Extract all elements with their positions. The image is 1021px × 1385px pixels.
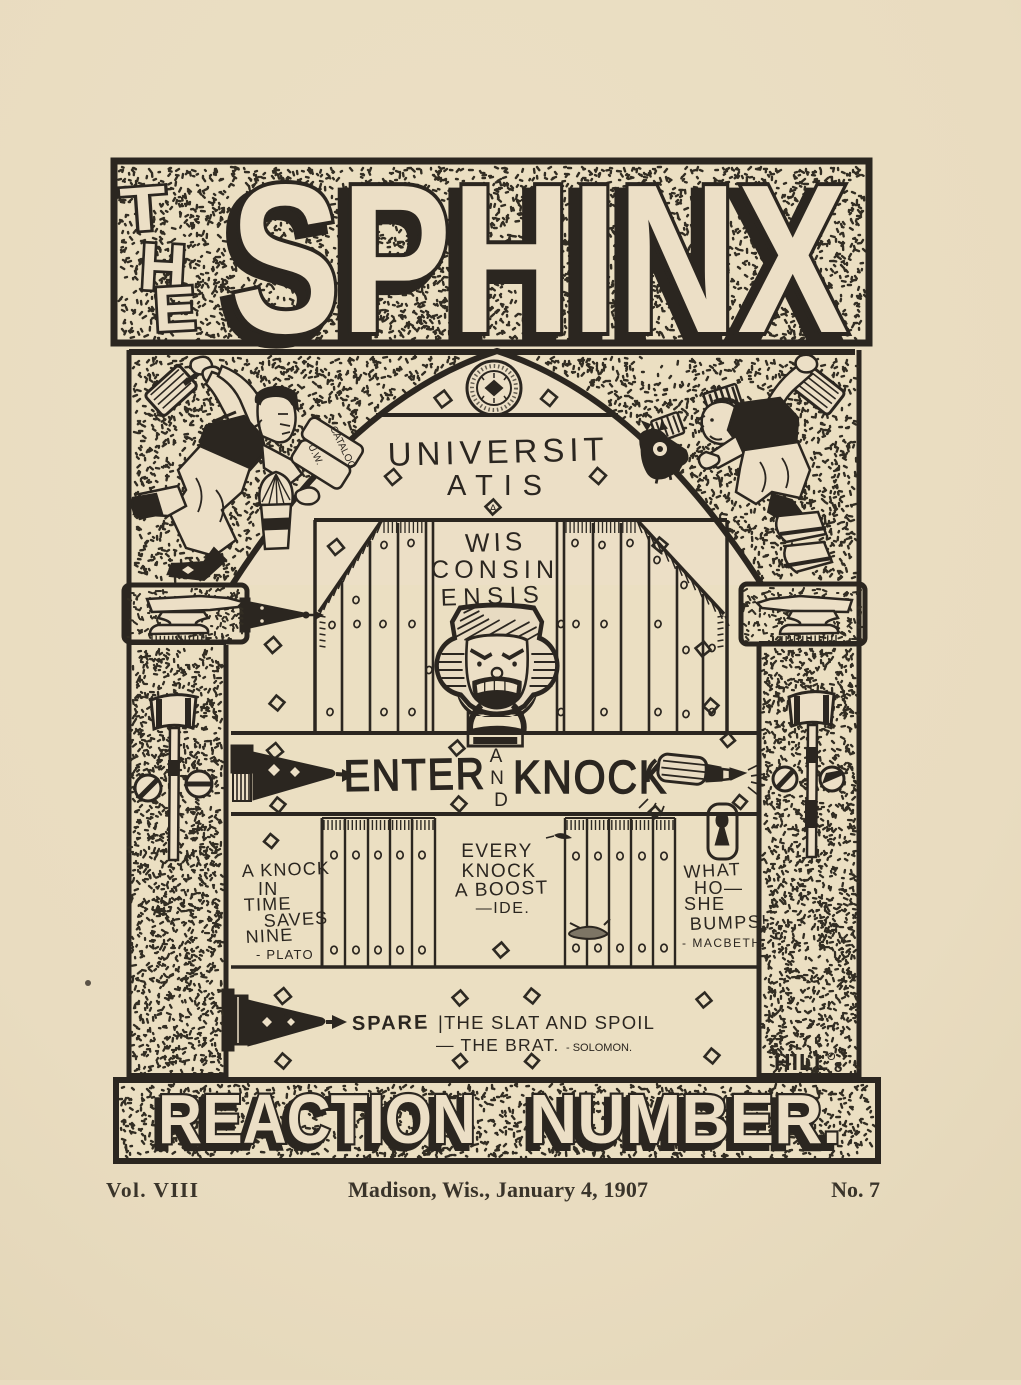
svg-text:CONSIN: CONSIN	[431, 556, 557, 584]
svg-text:A KNOCK: A KNOCK	[241, 858, 330, 881]
svg-text:- SOLOMON.: - SOLOMON.	[566, 1042, 632, 1054]
svg-text:- PLATO: - PLATO	[256, 947, 314, 962]
svg-text:ENTER: ENTER	[343, 750, 486, 801]
svg-text:— THE BRAT.: — THE BRAT.	[436, 1035, 559, 1055]
svg-text:REACTION: REACTION	[158, 1080, 476, 1158]
svg-text:A BOOST: A BOOST	[455, 877, 550, 901]
svg-text:|THE SLAT AND SPOIL: |THE SLAT AND SPOIL	[438, 1012, 655, 1033]
svg-text:N: N	[490, 768, 504, 789]
svg-text:—IDE.: —IDE.	[476, 900, 531, 917]
svg-text:SPARE: SPARE	[352, 1012, 430, 1035]
svg-text:No. 7: No. 7	[831, 1177, 880, 1202]
svg-text:WIS: WIS	[465, 526, 527, 558]
svg-text:Madison, Wis., January 4, 190: Madison, Wis., January 4, 1907	[348, 1177, 648, 1202]
svg-text:ATIS: ATIS	[447, 470, 547, 502]
svg-text:NUMBER.: NUMBER.	[529, 1080, 841, 1158]
svg-text:EVERY: EVERY	[461, 841, 533, 862]
svg-text:UNIVERSIT: UNIVERSIT	[387, 430, 608, 473]
svg-text:SHE: SHE	[684, 894, 726, 914]
svg-text:D: D	[494, 790, 508, 811]
svg-text:A: A	[490, 746, 503, 767]
svg-text:- MACBETH: - MACBETH	[682, 936, 762, 950]
svg-text:E: E	[152, 274, 198, 345]
svg-text:SPHINX: SPHINX	[230, 140, 848, 377]
svg-text:NINE: NINE	[245, 925, 294, 947]
svg-text:KNOCK: KNOCK	[513, 751, 668, 803]
svg-text:A: A	[489, 503, 497, 515]
svg-text:BUMPS!: BUMPS!	[689, 911, 768, 934]
